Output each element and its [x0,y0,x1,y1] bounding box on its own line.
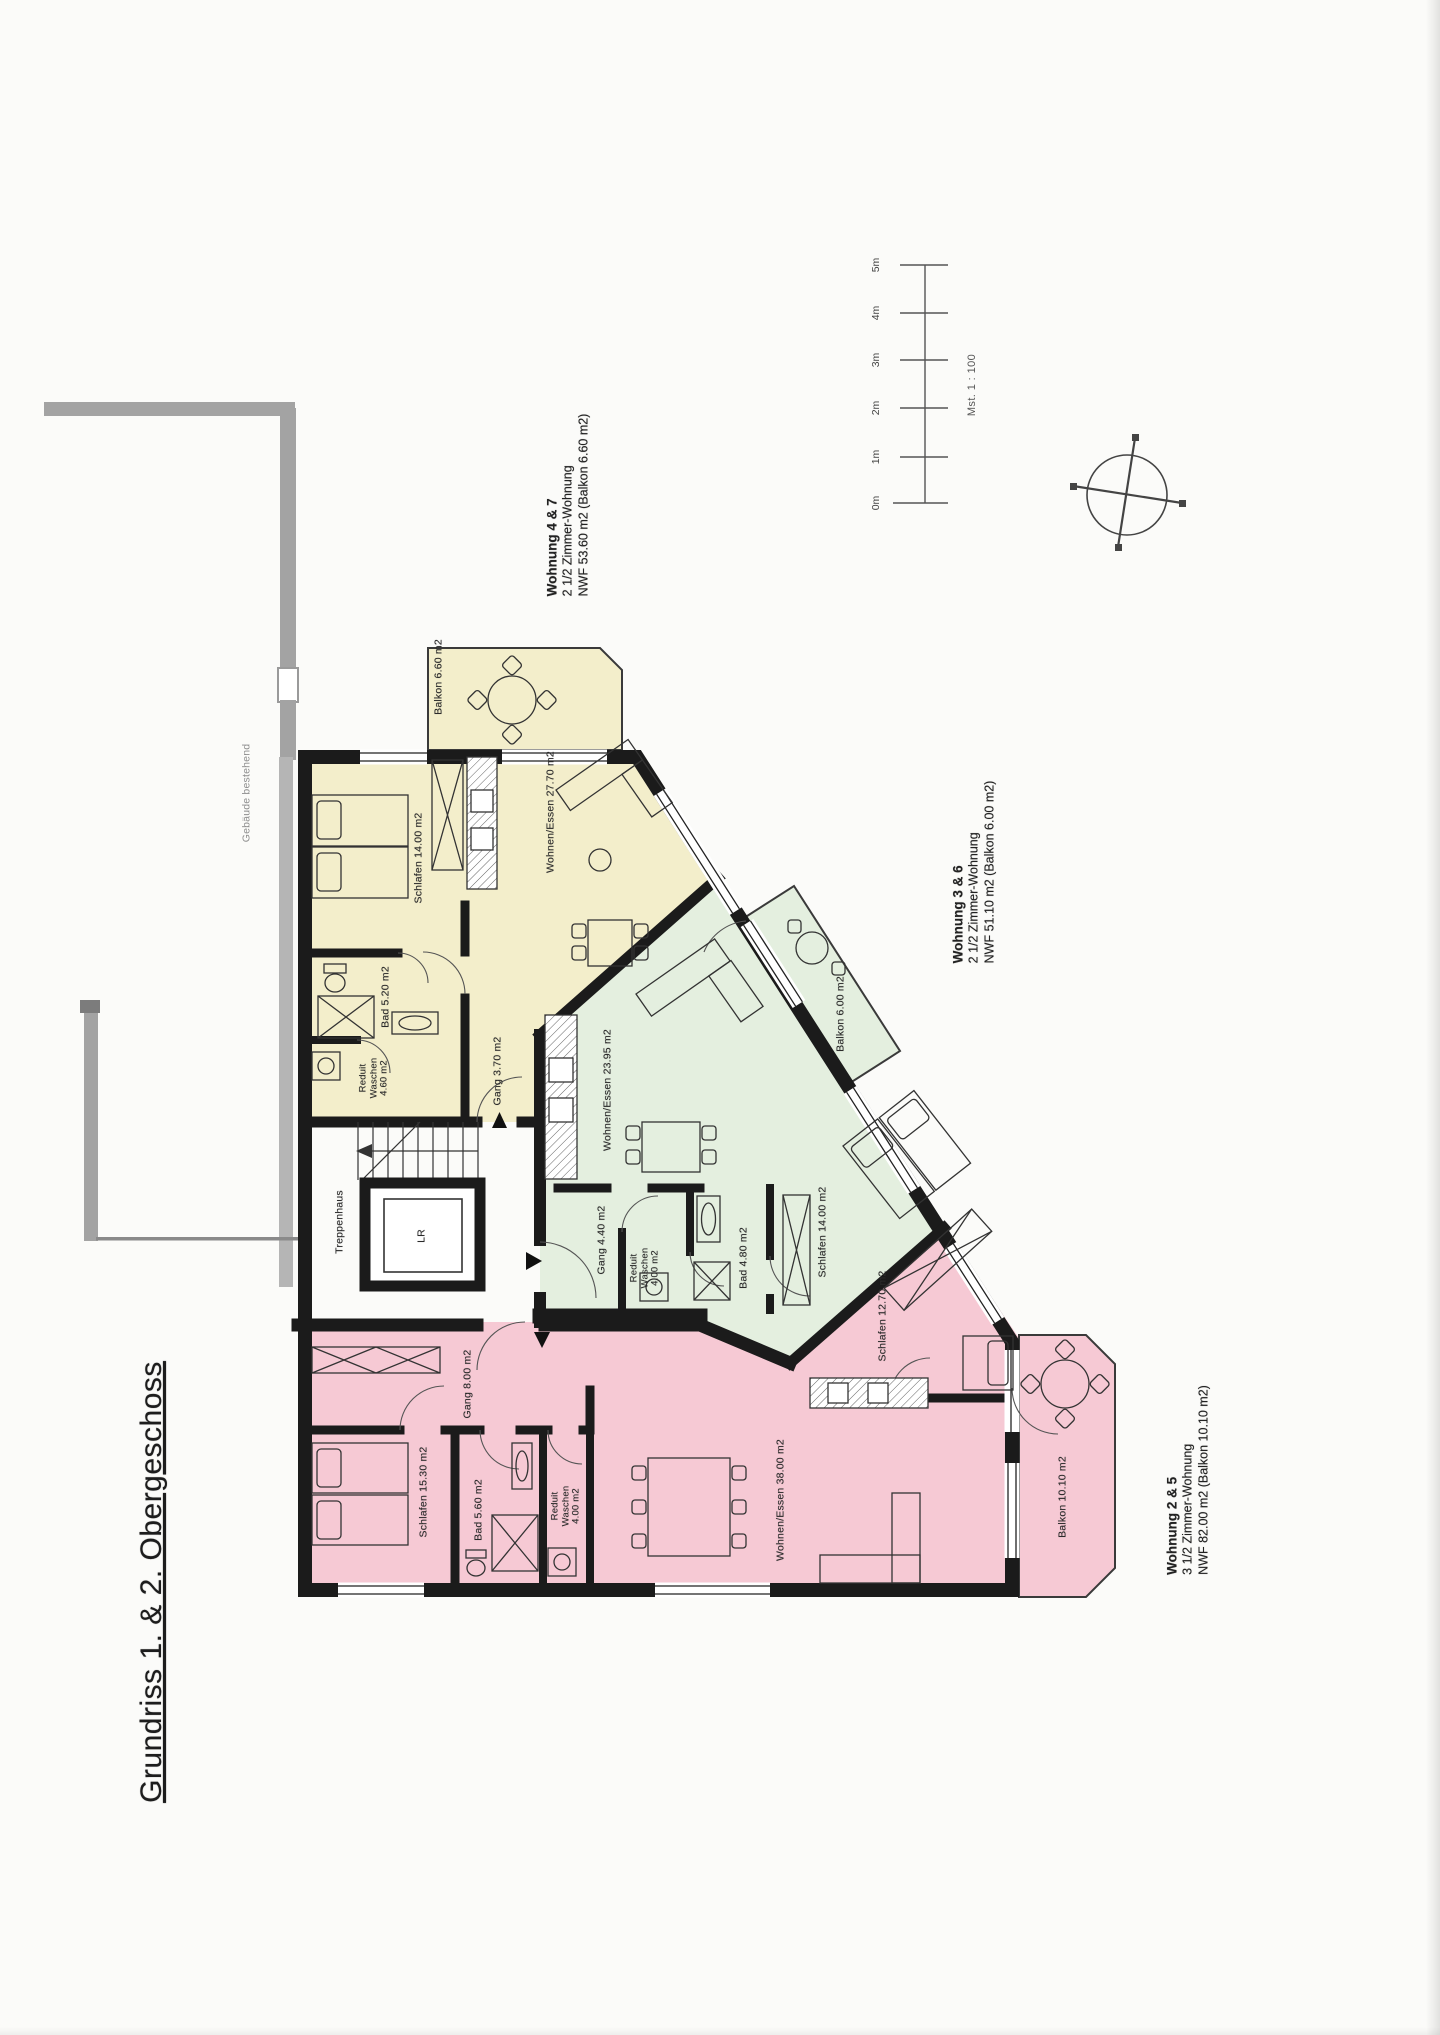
scale-tick-1m: 1m [870,450,882,465]
room-label-w36-schlafen: Schlafen 14.00 m2 [817,1187,829,1278]
room-label-w36-wohnen: Wohnen/Essen 23.95 m2 [602,1029,614,1151]
room-label-w25-wohnen: Wohnen/Essen 38.00 m2 [775,1439,787,1561]
floor-plan-drawing [0,0,1440,2035]
stairs-label: Treppenhaus [334,1190,346,1254]
room-label-w36-gang: Gang 4.40 m2 [596,1206,608,1275]
north-arrow-icon [1070,434,1186,551]
apartment-header-w36: Wohnung 3 & 6 2 1/2 Zimmer-Wohnung NWF 5… [951,781,998,964]
apartment-header-w25: Wohnung 2 & 5 3 1/2 Zimmer-Wohnung NWF 8… [1165,1385,1212,1575]
room-label-w47-reduit: Reduit Waschen 4.60 m2 [358,1058,390,1099]
floor-plan-sheet: Grundriss 1. & 2. Obergeschoss 0m 1m 2m … [0,0,1440,2035]
existing-building-walls [44,402,302,1287]
room-label-w25-reduit: Reduit Waschen 4.00 m2 [550,1486,582,1527]
staircase [356,1122,478,1180]
scale-tick-4m: 4m [870,306,882,321]
scale-tick-3m: 3m [870,353,882,368]
room-label-w25-schlafen1: Schlafen 15.30 m2 [418,1447,430,1538]
room-label-w47-balkon: Balkon 6.60 m2 [433,639,445,715]
room-label-w36-balkon: Balkon 6.00 m2 [835,976,847,1052]
room-label-w25-balkon: Balkon 10.10 m2 [1057,1456,1069,1538]
existing-building-label: Gebäude bestehend [241,744,253,843]
room-label-w36-reduit: Reduit Waschen 4.00 m2 [629,1248,661,1289]
room-label-w25-schlafen2: Schlafen 12.70 m2 [877,1271,889,1362]
room-label-w36-bad: Bad 4.80 m2 [738,1227,750,1289]
balcony-yellow [428,648,622,750]
page-title: Grundriss 1. & 2. Obergeschoss [135,1361,169,1803]
scale-tick-2m: 2m [870,401,882,416]
room-label-w47-gang: Gang 3.70 m2 [492,1037,504,1106]
scale-tick-5m: 5m [870,258,882,273]
room-label-w47-schlafen: Schlafen 14.00 m2 [413,813,425,904]
room-label-w47-bad: Bad 5.20 m2 [380,966,392,1028]
room-label-w25-gang: Gang 8.00 m2 [462,1350,474,1419]
room-label-w25-bad: Bad 5.60 m2 [473,1479,485,1541]
lift-label: LR [416,1229,428,1243]
apartment-header-w47: Wohnung 4 & 7 2 1/2 Zimmer-Wohnung NWF 5… [545,414,592,597]
scale-label: Mst. 1 : 100 [966,354,978,416]
room-label-w47-wohnen: Wohnen/Essen 27.70 m2 [545,751,557,873]
scale-tick-0m: 0m [870,496,882,511]
scale-bar [893,265,948,503]
